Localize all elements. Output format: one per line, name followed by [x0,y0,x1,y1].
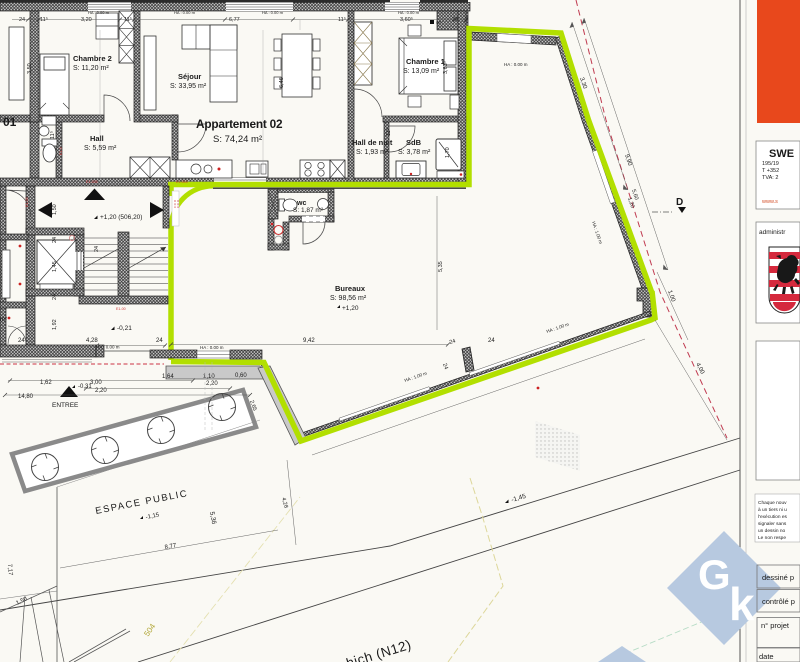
svg-text:S: 3,78 m²: S: 3,78 m² [398,149,431,156]
svg-text:S: 5,59 m²: S: 5,59 m² [84,145,117,152]
svg-text:7,17: 7,17 [6,564,13,577]
svg-text:contrôlé p: contrôlé p [762,597,795,606]
svg-text:ENTREE: ENTREE [52,402,79,409]
svg-text:HA : 0.00 m: HA : 0.00 m [96,345,120,350]
svg-text:1,92: 1,92 [52,319,58,330]
svg-text:1,64: 1,64 [162,374,174,380]
svg-text:S: 11,20 m²: S: 11,20 m² [73,65,109,72]
svg-text:signaler sans: signaler sans [758,521,787,527]
svg-text:6,77: 6,77 [229,17,240,23]
svg-text:HA : 0.00 m: HA : 0.00 m [174,10,196,15]
svg-text:2,20: 2,20 [95,388,107,394]
svg-text:11⁵: 11⁵ [385,128,392,136]
svg-text:1,45: 1,45 [52,261,58,272]
svg-text:HA : 0.00 m: HA : 0.00 m [262,10,284,15]
svg-text:HA : 0.00 m: HA : 0.00 m [398,10,420,15]
svg-text:6,46: 6,46 [279,77,285,88]
svg-text:à un tiers ni u: à un tiers ni u [758,507,787,513]
svg-text:24: 24 [18,338,25,344]
svg-text:E1-003: E1-003 [176,180,188,184]
svg-text:HA : 0.00 m: HA : 0.00 m [200,345,224,350]
svg-text:SdB: SdB [406,138,422,147]
svg-text:3,63⁵: 3,63⁵ [442,61,449,74]
svg-text:E1-0: E1-0 [59,147,63,155]
svg-text:24: 24 [52,237,58,243]
svg-text:E1-00: E1-00 [116,307,126,311]
svg-text:G: G [698,551,731,598]
svg-text:Chambre 1: Chambre 1 [406,57,445,66]
svg-text:administr: administr [759,229,786,236]
svg-text:24: 24 [94,246,100,252]
svg-text:dessiné p: dessiné p [762,573,794,582]
svg-text:1,50: 1,50 [52,204,58,215]
svg-text:+1,20: +1,20 [342,305,359,312]
svg-text:k: k [729,578,755,630]
svg-text:S: 1,87 m²: S: 1,87 m² [293,207,324,214]
svg-text:24: 24 [52,294,58,300]
svg-text:3,20: 3,20 [81,17,92,23]
svg-text:S: 74,24 m²: S: 74,24 m² [213,134,262,145]
svg-text:S: 33,95 m²: S: 33,95 m² [170,83,207,90]
svg-text:Hall de nuit: Hall de nuit [352,138,393,147]
svg-text:24: 24 [19,17,25,23]
svg-text:01: 01 [3,115,17,129]
svg-text:11⁵: 11⁵ [49,131,56,139]
svg-text:T +352: T +352 [762,168,779,174]
svg-text:24: 24 [488,338,495,344]
svg-text:24: 24 [452,17,458,23]
svg-text:195/19: 195/19 [762,161,779,167]
svg-text:m²: m² [0,317,7,323]
svg-text:Appartement 02: Appartement 02 [196,117,283,131]
svg-text:SP: SP [436,21,441,25]
svg-text:S: 1,93 m²: S: 1,93 m² [356,149,389,156]
svg-text:3,00: 3,00 [90,380,102,386]
svg-text:Le non respe: Le non respe [758,535,786,541]
svg-text:l'exécution es: l'exécution es [758,514,788,520]
svg-text:9,42: 9,42 [303,338,315,344]
svg-text:+1,20 (506,20): +1,20 (506,20) [100,214,142,221]
svg-text:4,28: 4,28 [86,338,98,344]
svg-text:D: D [676,197,683,208]
svg-text:HA : 0.00 m: HA : 0.00 m [88,10,110,15]
svg-text:www.s: www.s [761,199,778,205]
svg-text:n° projet: n° projet [761,621,790,630]
svg-text:E1-005: E1-005 [86,180,98,184]
svg-text:TVA: 2: TVA: 2 [762,175,778,181]
svg-text:wc: wc [296,200,306,207]
svg-text:date: date [759,652,774,661]
svg-text:Bureaux: Bureaux [335,284,366,293]
svg-text:Chaque nouv: Chaque nouv [758,500,787,506]
svg-text:SWE: SWE [769,148,794,160]
svg-text:HA : 0.00 m: HA : 0.00 m [504,62,528,67]
svg-text:un dessin no: un dessin no [758,528,786,534]
svg-text:0,60: 0,60 [235,373,247,379]
svg-text:3,50: 3,50 [27,63,33,74]
svg-text:Chambre 2: Chambre 2 [73,54,112,63]
svg-text:S: 13,09 m²: S: 13,09 m² [403,68,440,75]
svg-text:5,35: 5,35 [438,261,444,272]
svg-text:24: 24 [156,338,163,344]
svg-text:Hall: Hall [90,134,104,143]
svg-text:-0,21: -0,21 [117,325,132,332]
svg-text:S: 98,56 m²: S: 98,56 m² [330,295,367,302]
svg-text:1,70: 1,70 [445,147,451,158]
svg-text:Séjour: Séjour [178,72,201,81]
svg-text:E1-00: E1-00 [25,197,29,207]
svg-text:1,62: 1,62 [40,380,52,386]
